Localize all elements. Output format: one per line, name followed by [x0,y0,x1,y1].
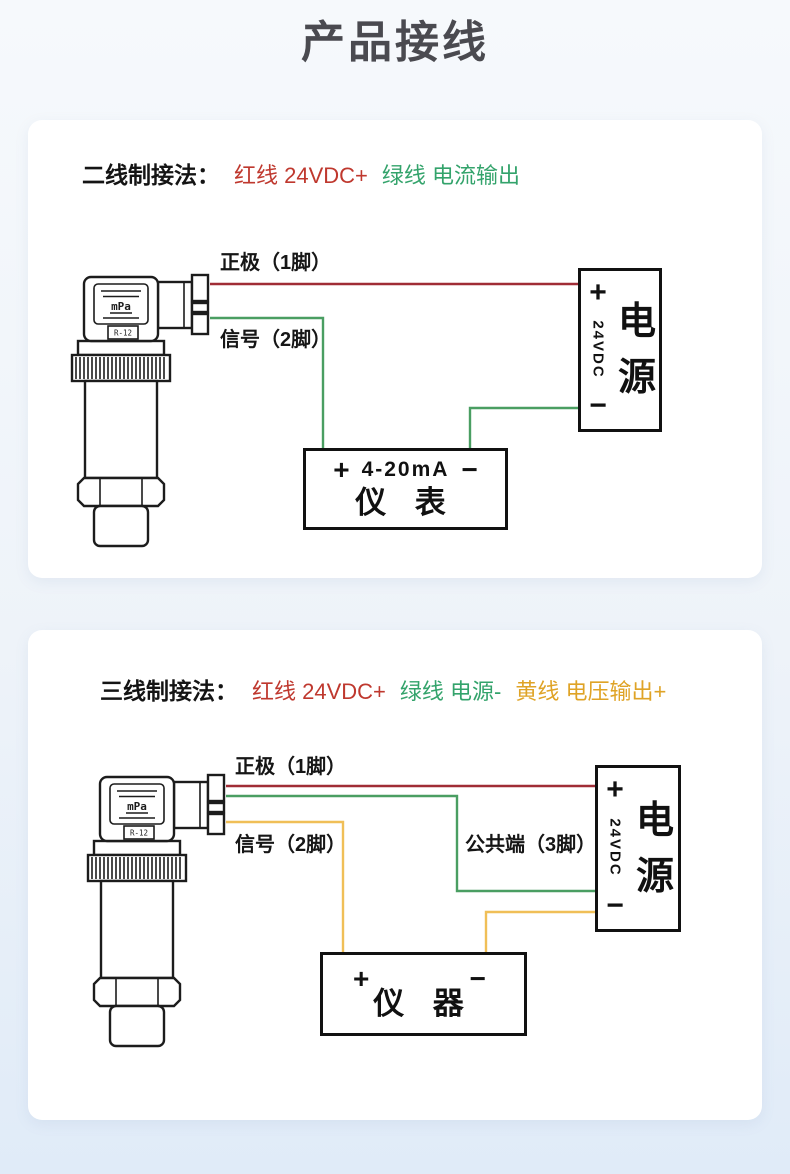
three-wire-legend-red: 红线 24VDC+ [252,674,386,706]
three-wire-heading-label: 三线制接法： [100,672,238,706]
power-terminals: + 24VDC − [598,768,632,929]
instrument-box: + − 仪 器 [320,952,527,1036]
page-title: 产品接线 [0,6,790,70]
power-supply-box: + 24VDC − 电 源 [578,268,662,432]
instrument-name: 仪 器 [373,985,474,1024]
power-voltage-label: 24VDC [607,818,624,876]
pressure-transmitter-illustration: mPa R-12 [70,260,230,550]
wiring-card-three-wire: 三线制接法： 红线 24VDC+ 绿线 电源- 黄线 电压输出+ [28,630,762,1120]
meter-terminals: + 4-20mA − [333,456,478,484]
pressure-transmitter-illustration: mPa R-12 [86,760,246,1050]
pin1-label: 正极（1脚） [235,750,346,779]
pin2-label: 信号（2脚） [220,323,331,352]
wiring-card-two-wire: 二线制接法： 红线 24VDC+ 绿线 电流输出 [28,120,762,578]
two-wire-heading-label: 二线制接法： [82,156,220,190]
power-supply-box: + 24VDC − 电 源 [595,765,681,932]
power-plus-terminal: + [589,279,607,306]
meter-range-label: 4-20mA [362,458,450,482]
two-wire-legend-red: 红线 24VDC+ [234,158,368,190]
sensor-display-text: mPa [127,800,147,813]
pin2-label: 信号（2脚） [235,828,346,857]
wire-green-line-return [470,408,580,450]
three-wire-legend-yellow: 黄线 电压输出+ [515,674,666,706]
power-plus-terminal: + [606,776,624,803]
power-name: 电 源 [632,768,678,929]
three-wire-legend-green: 绿线 电源- [400,674,501,706]
meter-box: + 4-20mA − 仪 表 [303,448,508,530]
meter-plus-terminal: + [333,456,349,484]
wire-yellow-line-return [486,912,597,954]
power-minus-terminal: − [589,392,607,419]
three-wire-heading: 三线制接法： 红线 24VDC+ 绿线 电源- 黄线 电压输出+ [100,672,666,706]
product-wiring-page: 产品接线 二线制接法： 红线 24VDC+ 绿线 电流输出 [0,0,790,1174]
instrument-plus-terminal: + [353,965,369,993]
power-terminals: + 24VDC − [581,271,615,429]
power-voltage-label: 24VDC [590,320,607,378]
two-wire-legend-green: 绿线 电流输出 [382,158,520,190]
meter-minus-terminal: − [461,456,477,484]
sensor-tag-text: R-12 [130,829,148,838]
power-name: 电 源 [615,271,659,429]
sensor-tag-text: R-12 [114,329,132,338]
pin3-label: 公共端（3脚） [465,828,596,857]
power-minus-terminal: − [606,892,624,919]
two-wire-heading: 二线制接法： 红线 24VDC+ 绿线 电流输出 [82,156,520,190]
pin1-label: 正极（1脚） [220,246,331,275]
meter-name: 仪 表 [355,484,456,523]
sensor-display-text: mPa [111,300,131,313]
